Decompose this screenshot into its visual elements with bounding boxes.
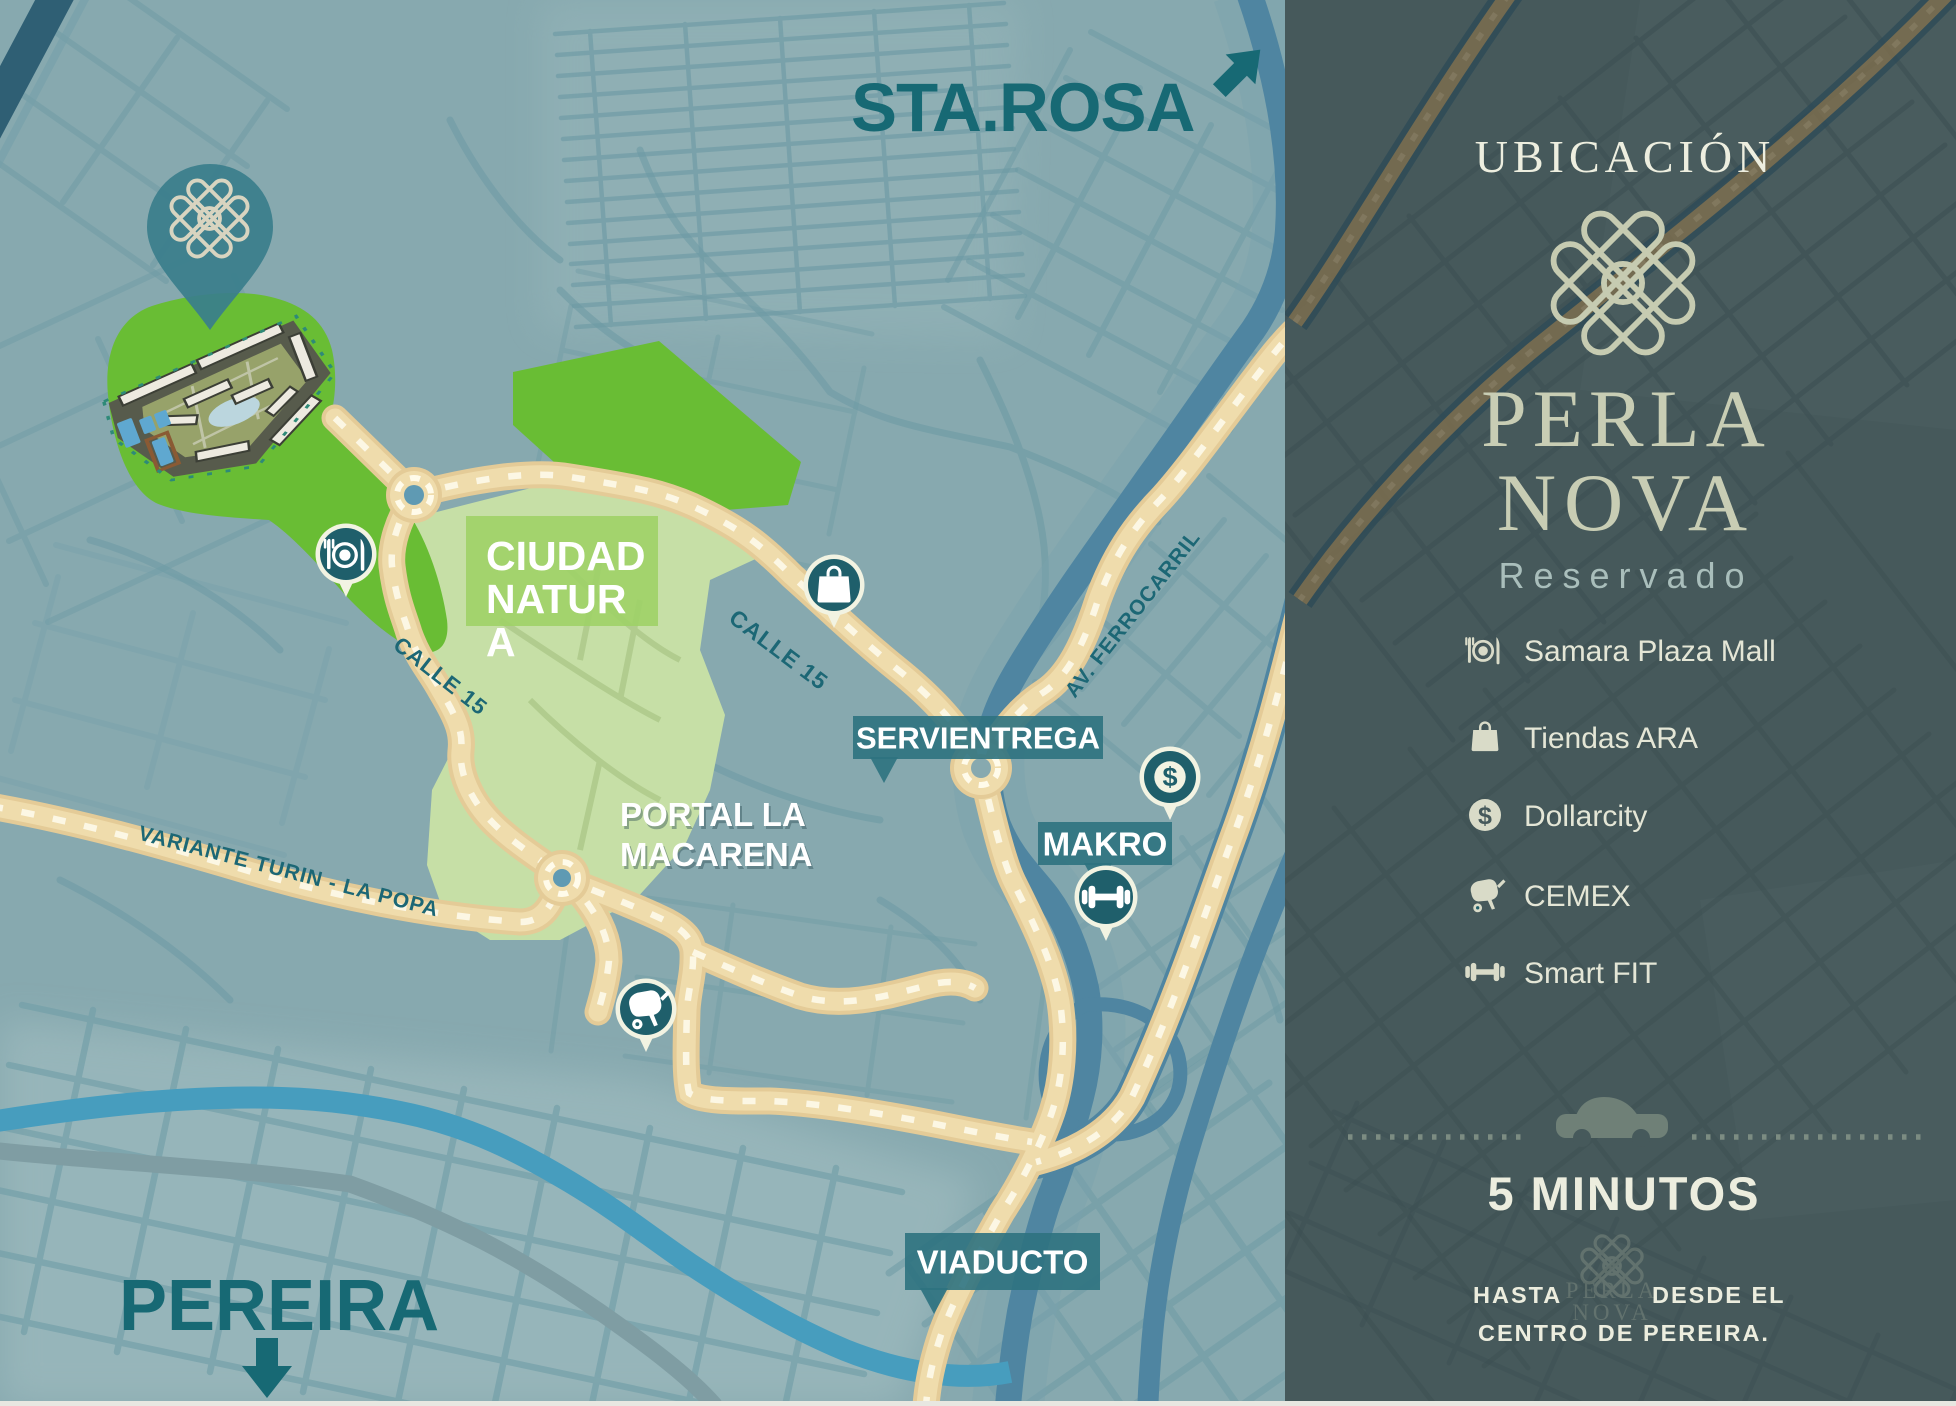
svg-text:Reservado: Reservado	[1498, 555, 1753, 596]
svg-text:Tiendas ARA: Tiendas ARA	[1524, 722, 1698, 755]
svg-text:Samara Plaza Mall: Samara Plaza Mall	[1524, 635, 1776, 668]
svg-text:STA.ROSA: STA.ROSA	[851, 69, 1195, 146]
svg-text:PEREIRA: PEREIRA	[119, 1266, 439, 1346]
svg-text:SERVIENTREGA: SERVIENTREGA	[856, 721, 1100, 756]
svg-text:DESDE EL: DESDE EL	[1652, 1282, 1786, 1308]
svg-text:5 MINUTOS: 5 MINUTOS	[1487, 1167, 1760, 1220]
svg-text:CIUDAD: CIUDAD	[486, 533, 645, 579]
svg-text:Smart FIT: Smart FIT	[1524, 957, 1657, 990]
svg-text:MAKRO: MAKRO	[1043, 825, 1168, 862]
svg-text:$: $	[1478, 802, 1492, 830]
svg-text:UBICACIÓN: UBICACIÓN	[1475, 131, 1776, 182]
svg-text:CEMEX: CEMEX	[1524, 880, 1631, 913]
svg-text:NOVA: NOVA	[1497, 457, 1755, 548]
svg-text:PORTAL LA: PORTAL LA	[620, 796, 806, 833]
svg-text:NATUR: NATUR	[486, 576, 626, 622]
svg-text:VIADUCTO: VIADUCTO	[917, 1243, 1089, 1280]
svg-text:MACARENA: MACARENA	[620, 836, 813, 873]
svg-text:A: A	[486, 619, 516, 665]
svg-text:HASTA: HASTA	[1473, 1282, 1562, 1308]
svg-text:CENTRO DE PEREIRA.: CENTRO DE PEREIRA.	[1478, 1320, 1770, 1346]
svg-text:Dollarcity: Dollarcity	[1524, 800, 1647, 833]
svg-text:PERLA: PERLA	[1481, 373, 1771, 464]
